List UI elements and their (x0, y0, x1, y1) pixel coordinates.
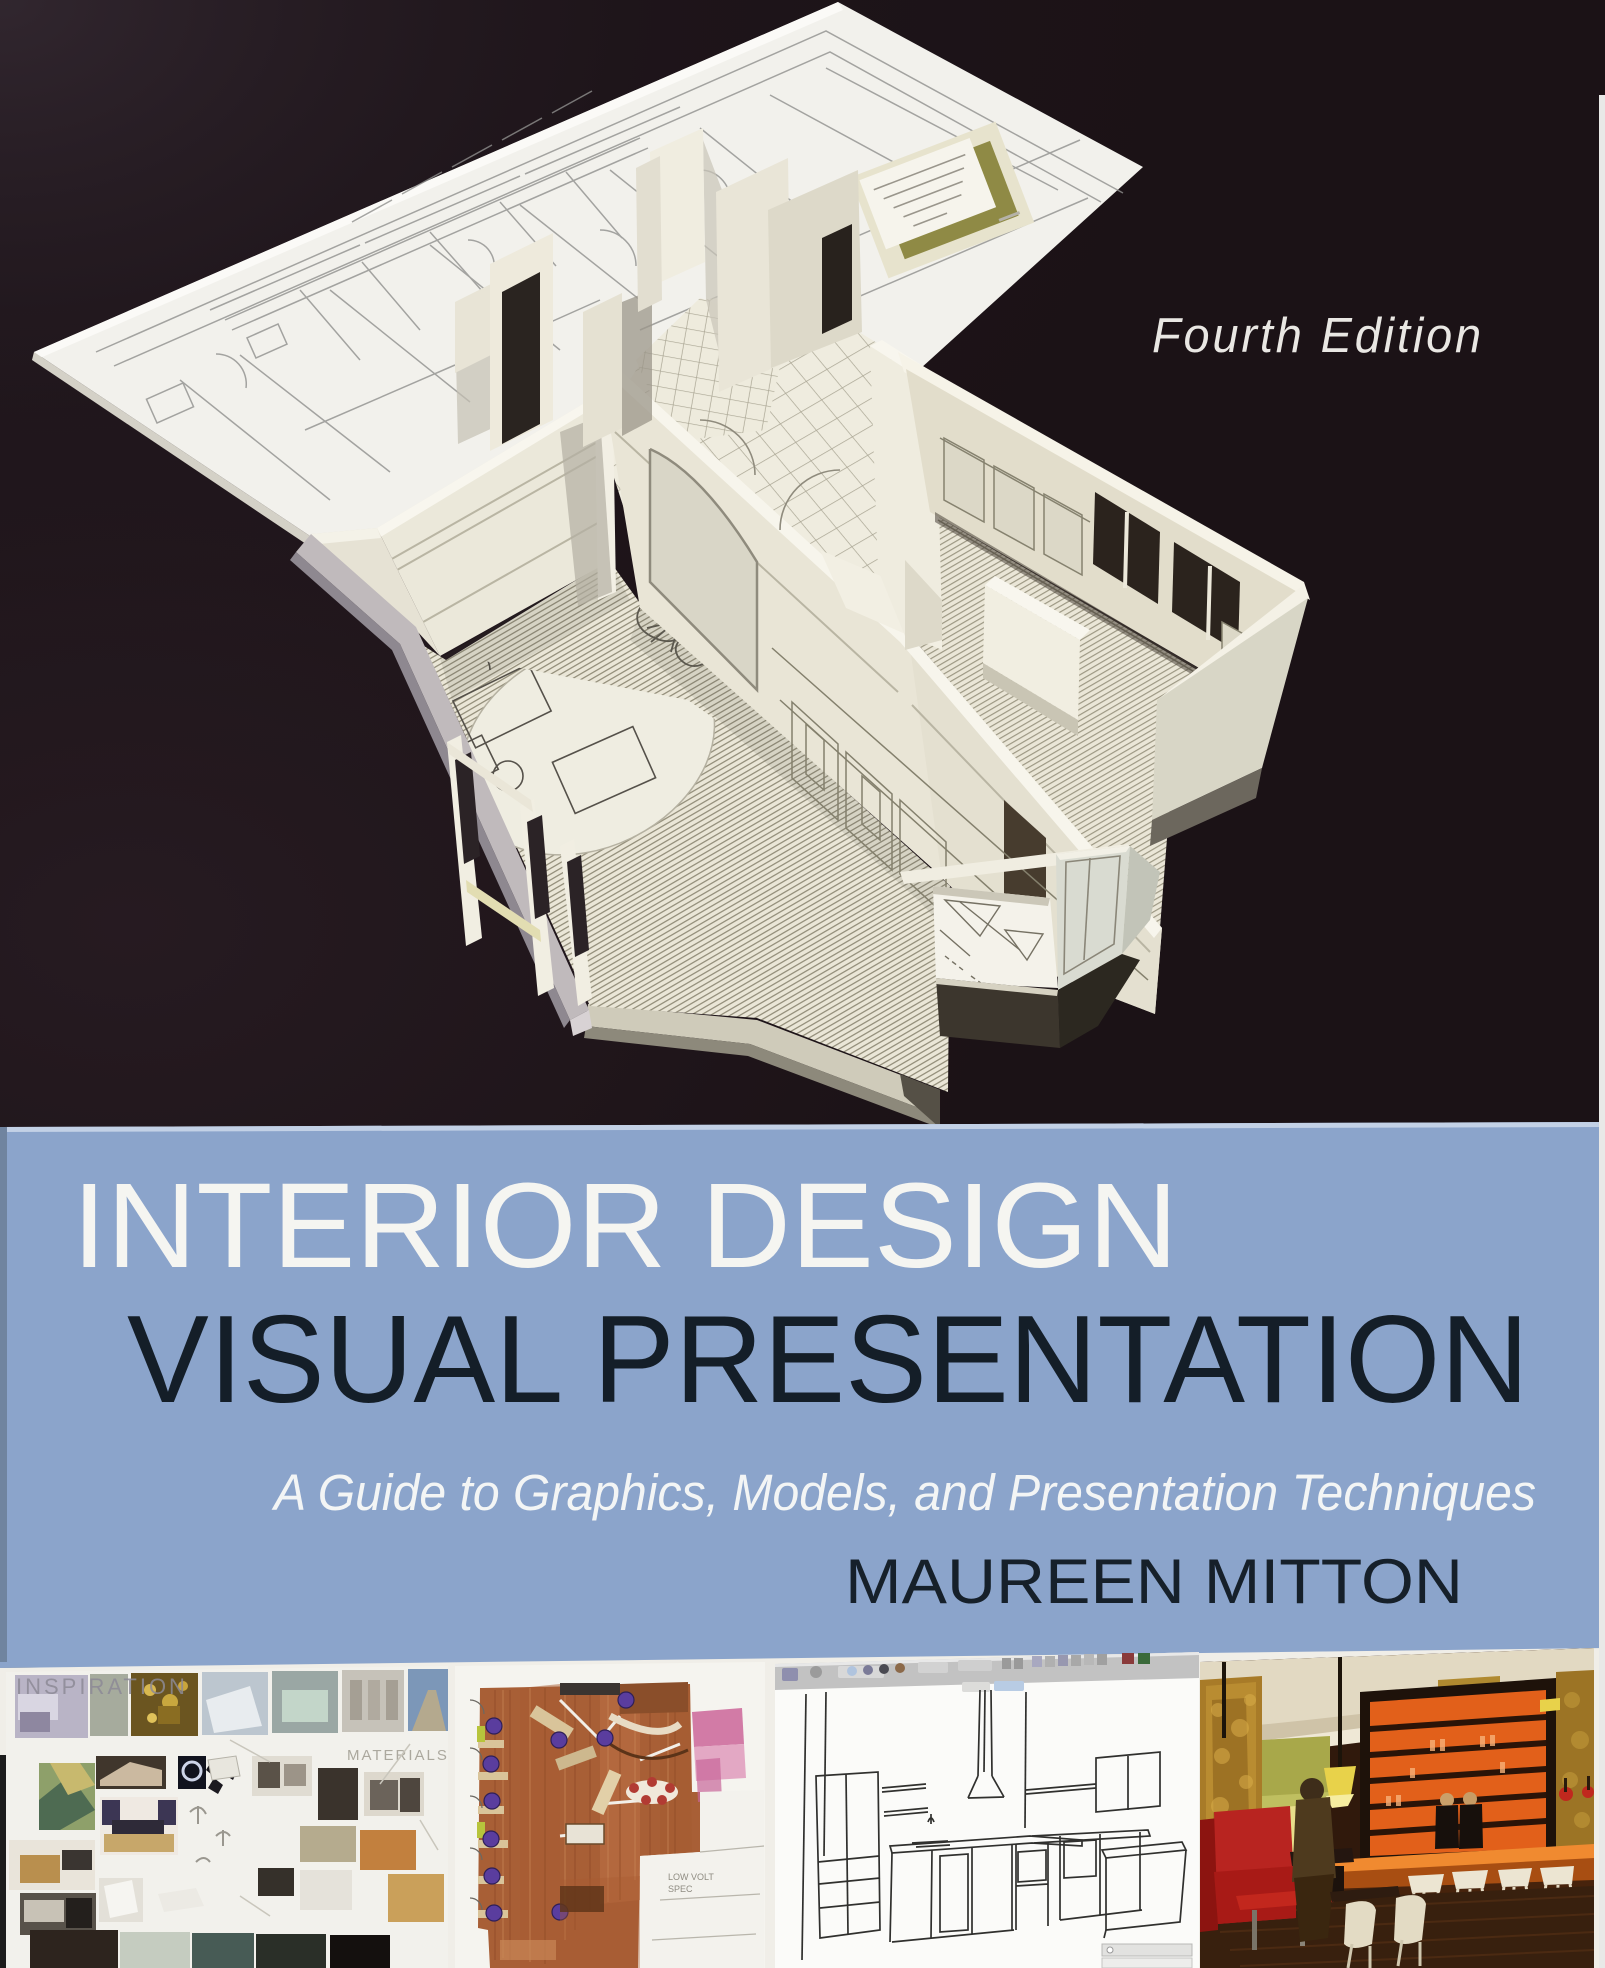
svg-text:Fourth Edition: Fourth Edition (1152, 309, 1484, 363)
svg-text:INSPIRATION: INSPIRATION (16, 1674, 188, 1699)
svg-text:MAUREEN MITTON: MAUREEN MITTON (845, 1547, 1463, 1617)
svg-text:LOW VOLT: LOW VOLT (668, 1872, 714, 1882)
svg-text:VISUAL PRESENTATION: VISUAL PRESENTATION (127, 1291, 1529, 1429)
svg-text:INTERIOR DESIGN: INTERIOR DESIGN (72, 1157, 1178, 1293)
svg-text:SPEC: SPEC (668, 1884, 693, 1894)
svg-text:A Guide to Graphics, Models, a: A Guide to Graphics, Models, and Present… (271, 1464, 1536, 1521)
svg-text:MATERIALS: MATERIALS (347, 1747, 449, 1764)
